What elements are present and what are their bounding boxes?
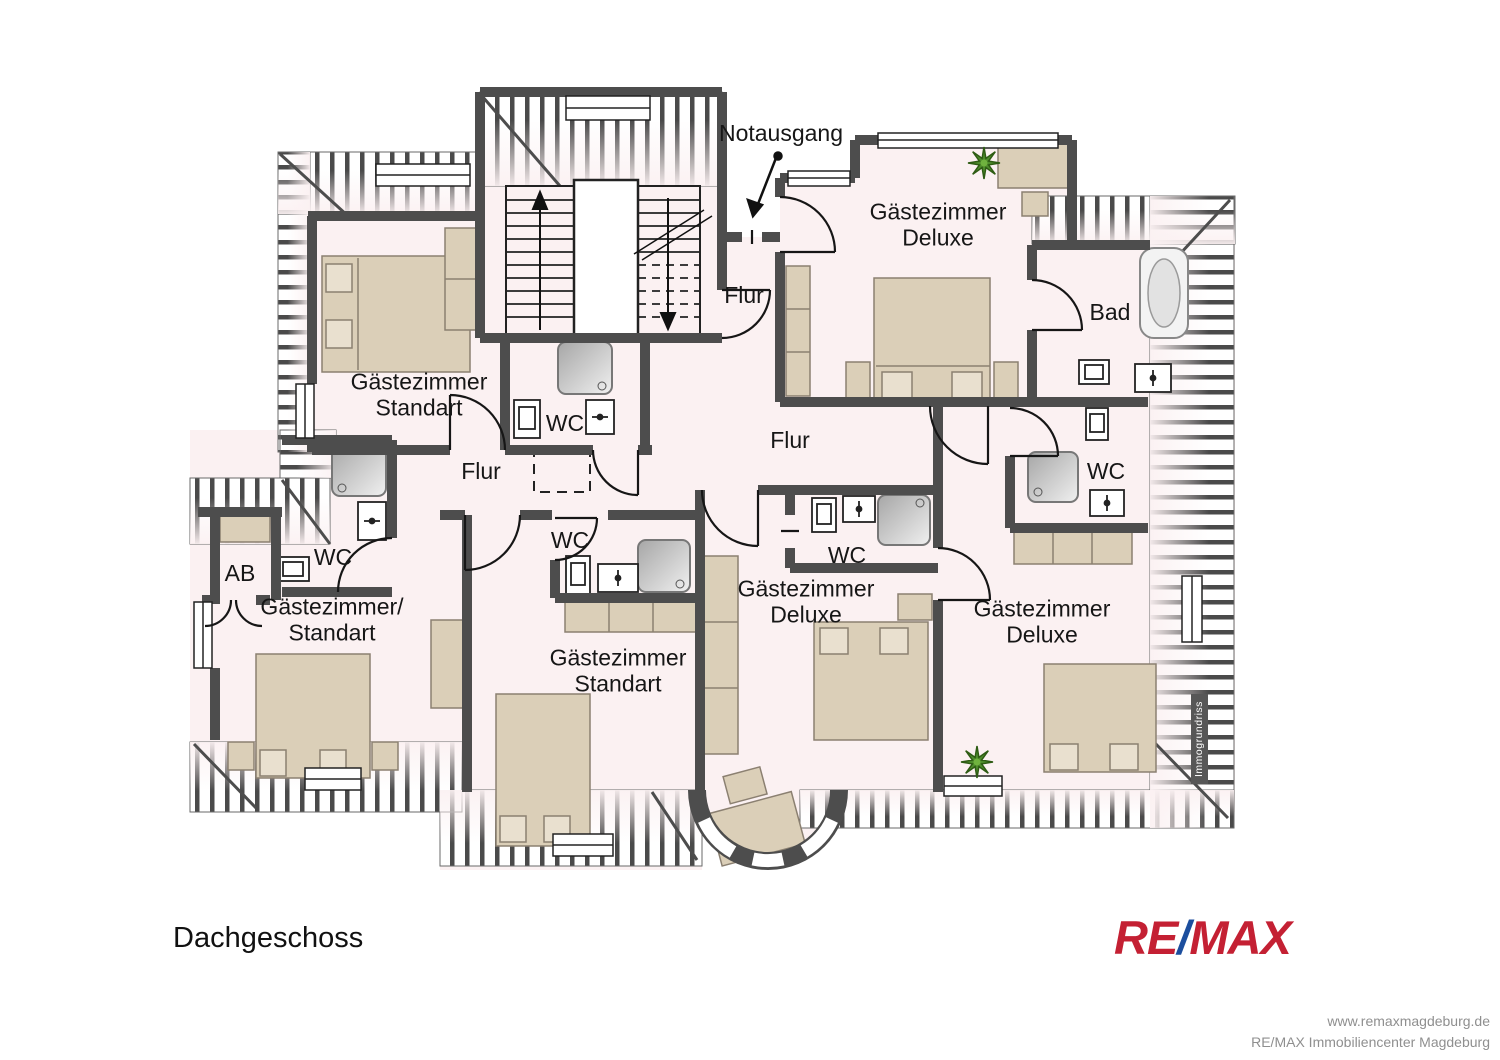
label-room-bottom: Gästezimmer Standart	[550, 645, 687, 697]
footer: www.remaxmagdeburg.de RE/MAX Immobilienc…	[1251, 1011, 1490, 1053]
window	[1182, 576, 1202, 642]
toilet-icon	[1079, 360, 1109, 384]
window	[788, 171, 850, 186]
stair-landing	[574, 180, 638, 338]
dresser-left-room	[431, 620, 463, 708]
label-storage: AB	[225, 561, 256, 587]
shower-icon	[1028, 452, 1078, 502]
floor-plan-drawing	[0, 0, 1500, 1060]
logo-re: RE	[1114, 911, 1177, 964]
label-room-left: Gästezimmer/ Standart	[260, 594, 403, 646]
footer-url: www.remaxmagdeburg.de	[1251, 1011, 1490, 1032]
sofa-bottom-room	[565, 602, 697, 632]
label-hall-main: Flur	[770, 428, 810, 454]
floorplan-page: Notausgang Gästezimmer Deluxe Bad Flur G…	[0, 0, 1500, 1060]
window	[878, 133, 1058, 148]
sink-icon	[1135, 364, 1171, 392]
sink-icon	[1090, 490, 1124, 516]
window	[305, 768, 361, 790]
label-hall-top: Flur	[724, 283, 764, 309]
toilet-icon	[1086, 408, 1108, 440]
sink-icon	[358, 502, 386, 540]
label-wc-center: WC	[551, 528, 589, 554]
footer-office: RE/MAX Immobiliencenter Magdeburg	[1251, 1032, 1490, 1053]
bed-bottom-room	[496, 694, 590, 846]
watermark-immogrundriss: Immogrundriss	[1191, 694, 1208, 784]
toilet-icon	[566, 556, 590, 594]
plant-icon	[968, 147, 1000, 179]
sink-icon	[843, 496, 875, 522]
shower-icon	[558, 342, 612, 394]
toilet-icon	[514, 400, 540, 438]
bed-mid-room	[814, 622, 928, 740]
window	[944, 776, 1002, 796]
shower-icon	[878, 495, 930, 545]
nightstand-mid-room	[898, 594, 932, 620]
floor-title: Dachgeschoss	[173, 922, 363, 955]
label-room-mid: Gästezimmer Deluxe	[738, 576, 875, 628]
chair-top-right	[1022, 192, 1048, 216]
staircase	[506, 180, 712, 338]
bed-left-room	[256, 654, 370, 778]
desk-top-right	[998, 142, 1070, 188]
wardrobe-top-left	[445, 228, 479, 330]
label-room-right: Gästezimmer Deluxe	[974, 596, 1111, 648]
logo-slash: /	[1177, 911, 1189, 964]
window	[553, 834, 613, 856]
sofa-right-room	[1014, 532, 1132, 564]
sofa-mid-room	[702, 556, 738, 754]
bed-right-room	[1044, 664, 1156, 772]
label-room-top-right: Gästezimmer Deluxe	[870, 199, 1007, 251]
window	[566, 96, 650, 120]
bathtub-icon	[1140, 248, 1188, 338]
plant-icon	[961, 746, 993, 778]
window	[376, 164, 470, 186]
label-wc-stairs: WC	[546, 411, 584, 437]
label-wc-mid: WC	[828, 543, 866, 569]
window	[194, 602, 212, 668]
window	[296, 384, 314, 438]
label-hall-left: Flur	[461, 459, 501, 485]
label-room-top-left: Gästezimmer Standart	[351, 369, 488, 421]
label-wc-left: WC	[314, 545, 352, 571]
bed-top-right	[874, 278, 990, 402]
logo-max: MAX	[1189, 911, 1290, 964]
sink-icon	[586, 400, 614, 434]
remax-logo: RE/MAX	[1114, 910, 1291, 965]
exit-label: Notausgang	[719, 121, 843, 147]
wardrobe-top-right	[786, 266, 810, 396]
label-bath: Bad	[1090, 300, 1131, 326]
toilet-icon	[277, 557, 309, 581]
shower-icon	[638, 540, 690, 592]
toilet-icon	[812, 498, 836, 532]
sink-icon	[598, 564, 638, 592]
label-wc-right: WC	[1087, 459, 1125, 485]
